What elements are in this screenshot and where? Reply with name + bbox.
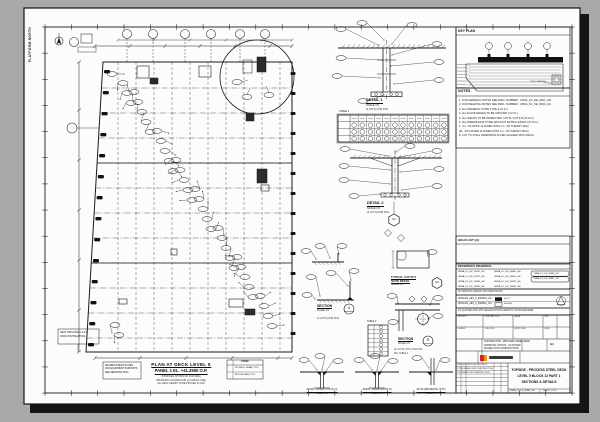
detail2-note: (2 LOC'S) FOR POS. — [367, 212, 390, 214]
rev-row: P2 RE-ISSUED FOR CONSTRUCTION — [458, 368, 493, 370]
table2-label: TABLE 2 — [367, 321, 376, 323]
ref-item: UNNA_FC_DE_30883_GN — [494, 281, 520, 283]
hold-list-label: HOLD LIST (H) — [458, 239, 479, 242]
key-plan-label: KEY PLAN — [458, 30, 475, 33]
sectionA-scale: SCALE 1:5 — [317, 310, 329, 312]
note-item: 8. CUT TO FINAL DIMENSION AFTER ALIGNED … — [459, 134, 569, 138]
ref-item: UNNA_FC_DE_30880_GN — [494, 271, 520, 273]
detail2-scale: SCALE 1:5 — [367, 208, 380, 211]
ref-item-boxed: UNNA_FC_DE_30886_GN — [534, 273, 559, 275]
reference-label: REFERENCE DRAWINGS — [458, 265, 491, 268]
plan-subnote-3: ALL DECK SEAMS TO BE PROVEN FLUSH — [157, 383, 205, 385]
logo-mark-icon — [484, 355, 487, 361]
detail1-note: (2 LOC'S) FOR POS. — [366, 109, 389, 111]
ref-item: UNNA_FC_DE_26780_GN — [458, 271, 484, 273]
drawing-title-2: LEVEL 5 BLOCK 12 PART 1 — [518, 375, 561, 378]
tb-field-label: PROJECT — [458, 316, 468, 318]
sectionB-bubble: B — [427, 339, 429, 342]
sectionB-note2: DIA. TABLE 2 — [394, 353, 408, 355]
plan-left-note-1: WELDED INSERT PLATES — [105, 365, 133, 367]
tb-size: A1 — [550, 343, 554, 346]
sectionA-note: (2 LOC'S) FOR POS. — [317, 318, 340, 320]
weld2-scale: SCALE 1:5 — [372, 393, 383, 395]
ref-item: UNNA_FC_DE_26985_GN — [458, 286, 484, 288]
sectionB-note: (2 LOC'S) (TYP.) FOR POS. — [394, 349, 423, 351]
tb-field-label: DRAWN — [458, 328, 466, 330]
notes-list: 1. FOR GENERAL NOTES SEE DWG. NUMBER : U… — [459, 99, 569, 138]
cutout-scale: SCALE 1:5 — [391, 284, 403, 286]
cert-row: UNNA-B1_AE3_C_0000010_GN — [458, 298, 492, 300]
logo-text-blur — [489, 356, 513, 359]
tb-field-label: CONTRACT No. — [485, 316, 500, 318]
notes-label: NOTES — [458, 90, 470, 94]
cert-tag: No.0001 — [504, 303, 512, 305]
ref-item: UNNA_FC_DE_26984_GN — [458, 281, 484, 283]
ref-item: UNNA_FC_DE_30884_GN — [494, 286, 520, 288]
key-plan-note: THIS DRAWING — [530, 81, 546, 83]
logo-mark-icon — [480, 355, 484, 361]
sectionA-bubble: A — [348, 307, 350, 310]
ref-item: UNNA_FC_DE_30881_GN — [494, 276, 520, 278]
drawing-title-3: SECTIONS & DETAILS — [522, 381, 557, 384]
table1-label: TABLE 1 — [339, 111, 349, 114]
hold-hex2-label: H2 — [435, 282, 438, 285]
weld1-scale: SCALE 1:5 — [317, 393, 328, 395]
scanned-drawing-sheet: PLATFORM NORTH PLAN AT DECK LEVEL 5 PANE… — [0, 0, 600, 422]
sectionB-scale: SCALE 1:5 — [398, 343, 410, 345]
hold-hex1-label: H1 — [392, 219, 395, 222]
legend-row-1: W2 WELD SEAM (TYP.) — [235, 367, 259, 369]
rev-row: P1 ISSUED FOR CONSTRUCTION — [458, 372, 490, 374]
reference-band-note: NO SPECIFIC DESIGN DOCUMENTATION — [458, 291, 503, 293]
ref-item-boxed: UNNA_FC_DE_30887_GN — [534, 278, 559, 280]
tb-mid-line3: ISSUED FOR CONSTRUCTION — [484, 348, 519, 350]
tb-field-label: DATE — [545, 328, 550, 330]
programme-band-note: AS QUOTED AND STR. RELEVANT DOCUMENTS TO… — [458, 310, 533, 312]
next-dwg-note-2: (FOR CONTINUATION) — [60, 336, 85, 338]
plan-title-line2: PANEL 1 EL. +41.2500 O.P. — [155, 369, 208, 375]
tb-sheet: SHEET 1 OF 1 — [543, 390, 557, 392]
drawing-title-1: TOPSIDE - PROCESS STEEL DECK — [511, 369, 566, 372]
tb-field-label: CHECKED — [485, 328, 495, 330]
legend-table-title: TABLE — [241, 361, 249, 363]
legend-row-2: FB FLAT BAR (TYP.) — [235, 374, 255, 376]
cert-tag: No.72 — [504, 298, 510, 300]
cert-row: UNNA-B1_AE3_C_0000011_GN — [458, 303, 491, 305]
ref-item: UNNA_FC_DE_26781_GN — [458, 276, 484, 278]
weld3-scale: SCALE 1:5 — [426, 393, 437, 395]
tb-field-label: APPROVED — [515, 328, 527, 330]
tb-field-label: AREA — [515, 316, 521, 318]
plan-left-note-2: FOR EQUIPMENT SUPPORTS — [105, 368, 137, 370]
detail1-scale: SCALE 1:5 — [366, 105, 379, 108]
rev-table-header: REV DESCRIPTION DATE APPD — [458, 364, 488, 366]
tb-field-label: REV — [545, 316, 549, 318]
company-logo — [480, 354, 516, 361]
plan-left-note-3: SEE SEPARATE DWG. — [105, 372, 129, 374]
platform-north-label: PLATFORM NORTH — [29, 27, 32, 62]
tb-dwg-number: UNNA_FC_DE_30882_GN — [510, 390, 535, 392]
